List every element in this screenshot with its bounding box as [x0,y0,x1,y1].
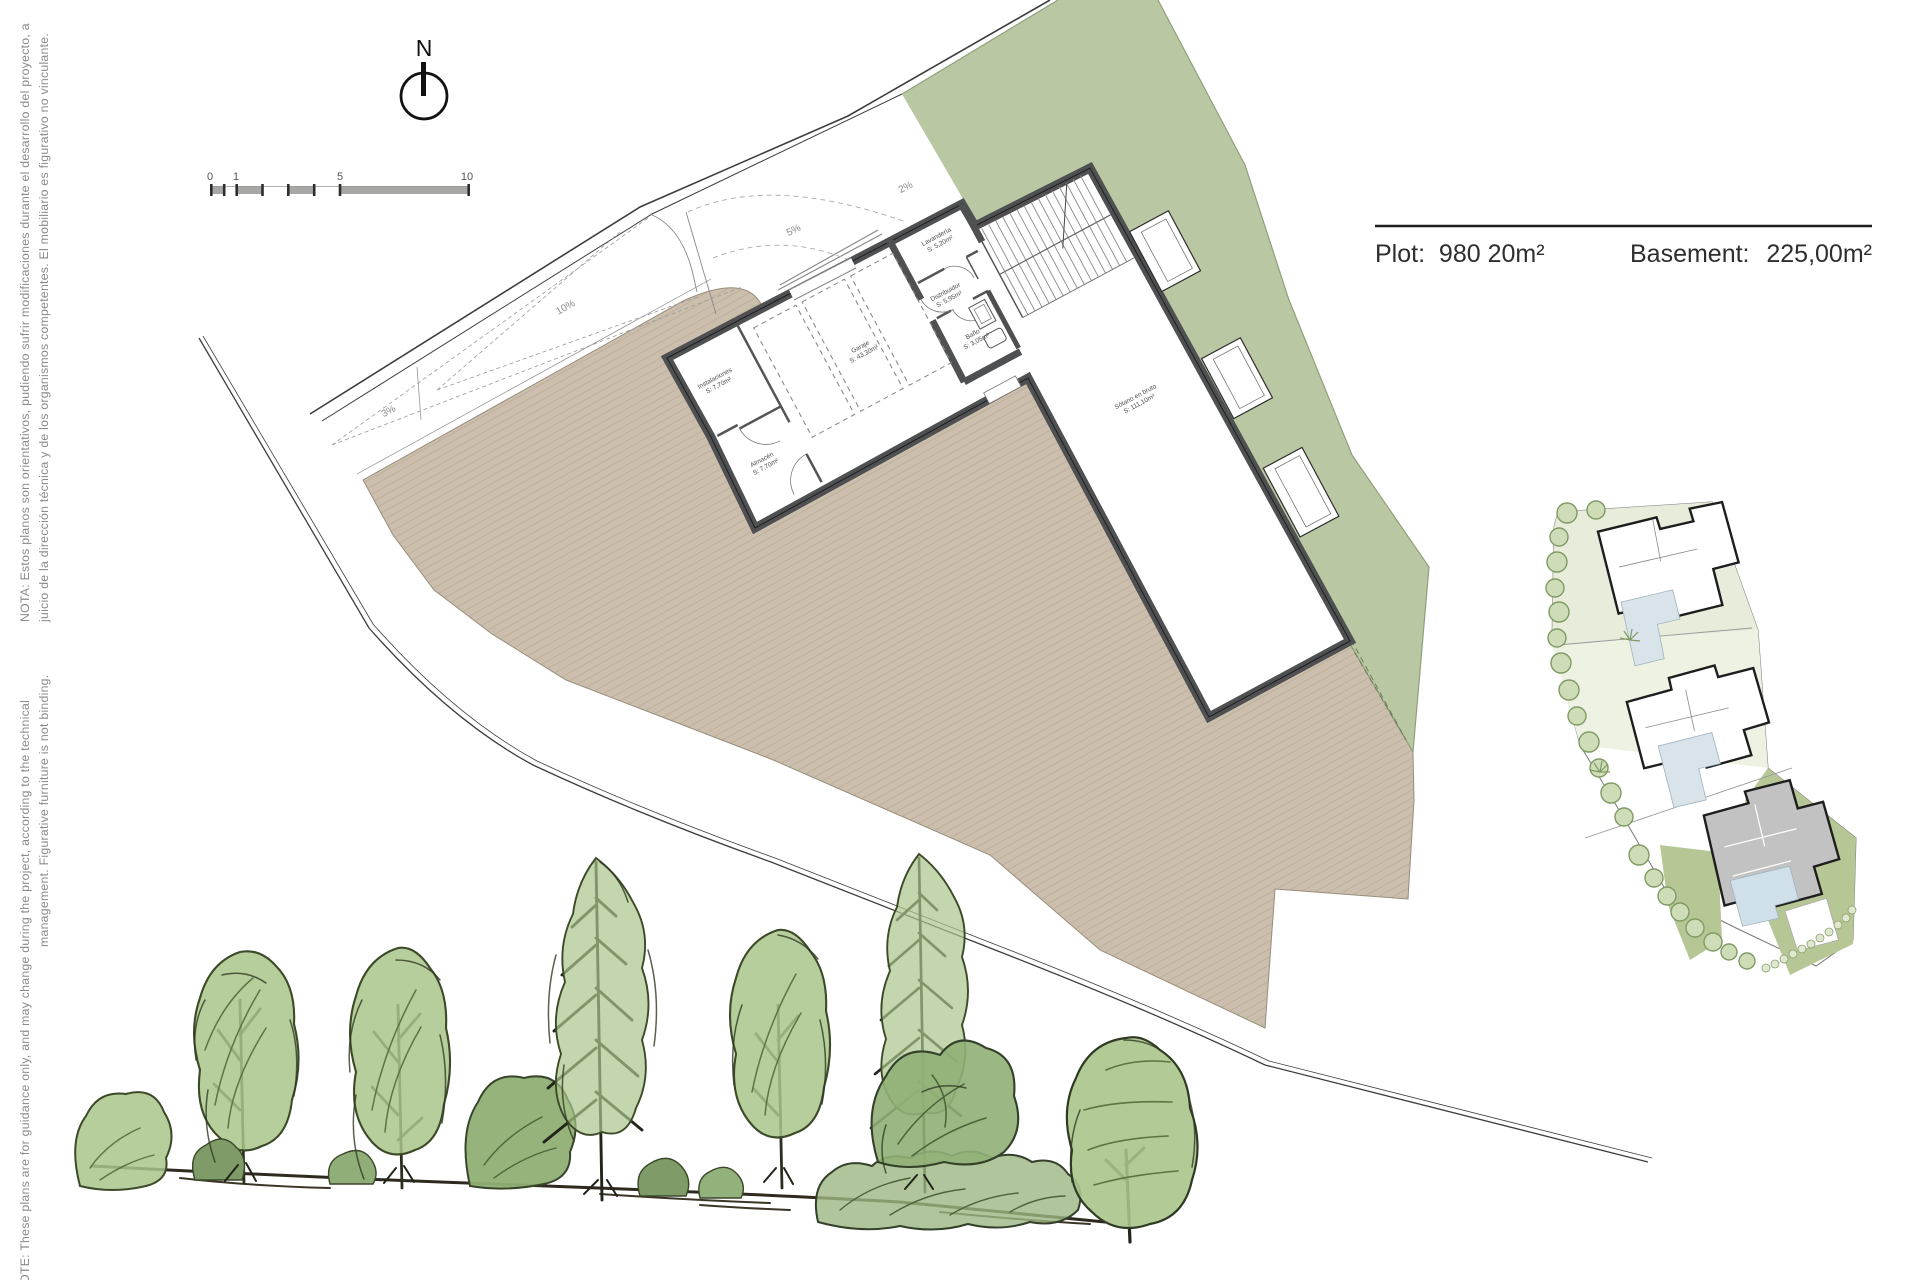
svg-text:Basement:: Basement: [1630,240,1750,268]
svg-text:5: 5 [337,171,343,183]
svg-text:1: 1 [233,171,239,183]
svg-text:management. Figurative furnitu: management. Figurative furniture is not … [37,675,51,947]
svg-text:NOTE: These plans are for guid: NOTE: These plans are for guidance only,… [18,700,32,1280]
svg-text:juicio de la dirección técnica: juicio de la dirección técnica y de los … [37,33,51,623]
svg-text:10: 10 [461,171,473,183]
svg-text:NOTA: Estos planos son orienta: NOTA: Estos planos son orientativos, pud… [18,23,32,622]
svg-text:N: N [416,35,433,61]
svg-text:0: 0 [207,171,213,183]
svg-text:2%: 2% [897,180,915,196]
svg-text:10%: 10% [554,298,577,317]
svg-text:225,00m²: 225,00m² [1766,240,1872,268]
svg-text:5%: 5% [785,223,803,239]
svg-text:3%: 3% [380,403,398,420]
svg-text:Plot: 980 20m²: Plot: 980 20m² [1375,240,1545,268]
